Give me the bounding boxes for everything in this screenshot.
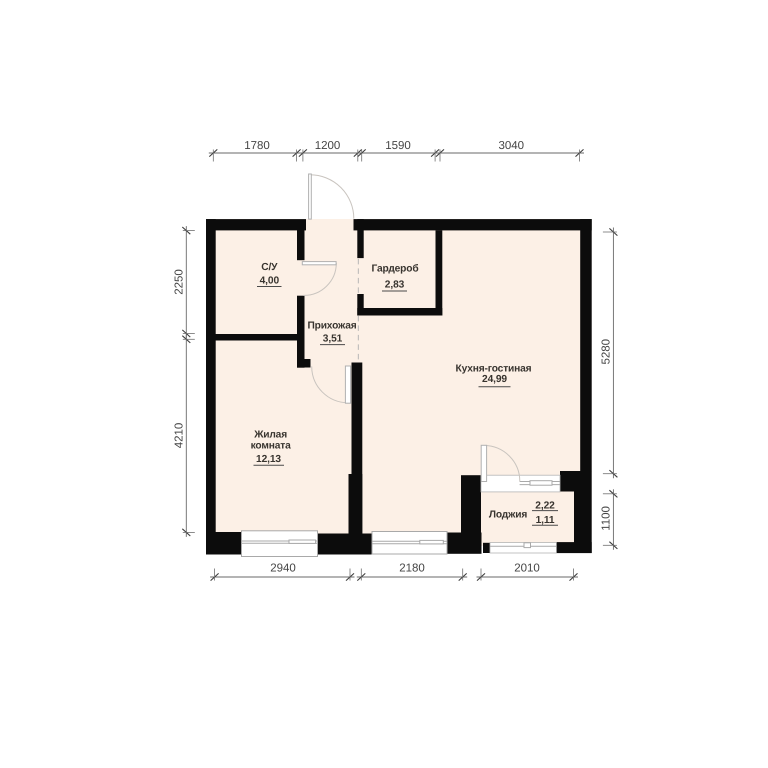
svg-text:3,51: 3,51	[323, 333, 343, 344]
svg-text:2180: 2180	[399, 562, 425, 574]
svg-text:4210: 4210	[174, 423, 186, 449]
svg-text:Прихожая: Прихожая	[307, 320, 356, 331]
svg-text:5280: 5280	[600, 339, 612, 365]
svg-text:2,22: 2,22	[535, 500, 555, 511]
svg-text:2010: 2010	[514, 562, 540, 574]
svg-text:2250: 2250	[174, 269, 186, 295]
svg-text:Лоджия: Лоджия	[489, 510, 527, 521]
svg-text:1,11: 1,11	[536, 515, 555, 526]
svg-text:2940: 2940	[270, 562, 296, 574]
svg-text:С/У: С/У	[261, 262, 278, 273]
svg-text:Жилая: Жилая	[253, 430, 287, 441]
svg-text:Кухня-гостиная: Кухня-гостиная	[456, 363, 532, 374]
svg-text:3040: 3040	[499, 140, 525, 152]
svg-text:4,00: 4,00	[260, 275, 280, 286]
svg-text:комната: комната	[251, 441, 291, 452]
svg-text:1200: 1200	[315, 140, 341, 152]
svg-text:Гардероб: Гардероб	[372, 264, 419, 275]
svg-text:1590: 1590	[385, 140, 411, 152]
svg-text:1100: 1100	[600, 506, 612, 531]
svg-text:2,83: 2,83	[385, 280, 405, 291]
svg-text:24,99: 24,99	[482, 374, 507, 385]
svg-text:12,13: 12,13	[256, 454, 281, 465]
svg-text:1780: 1780	[244, 140, 270, 152]
